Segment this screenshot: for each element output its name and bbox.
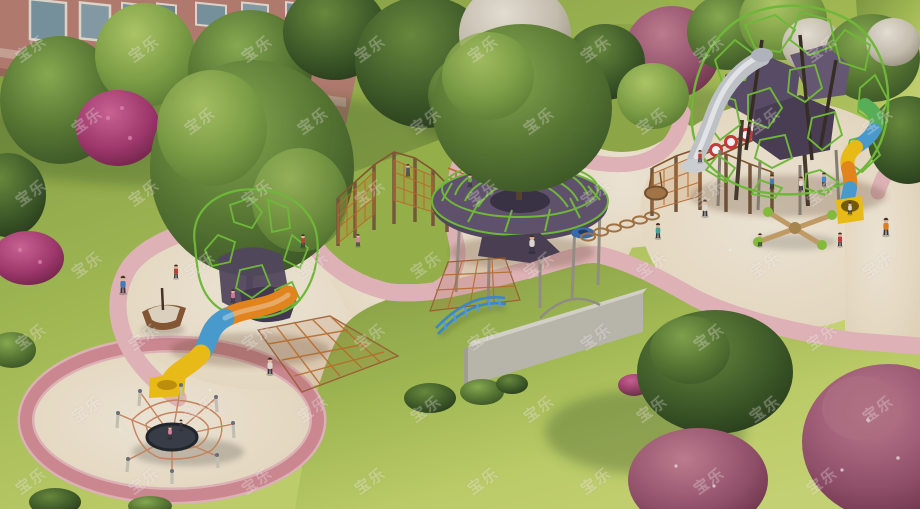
playground-rendering: 宝乐宝乐宝乐宝乐宝乐宝乐宝乐宝乐宝乐宝乐宝乐宝乐宝乐宝乐宝乐宝乐宝乐宝乐宝乐宝乐… [0,0,920,509]
scene-canvas [0,0,920,509]
vignette [0,0,920,509]
